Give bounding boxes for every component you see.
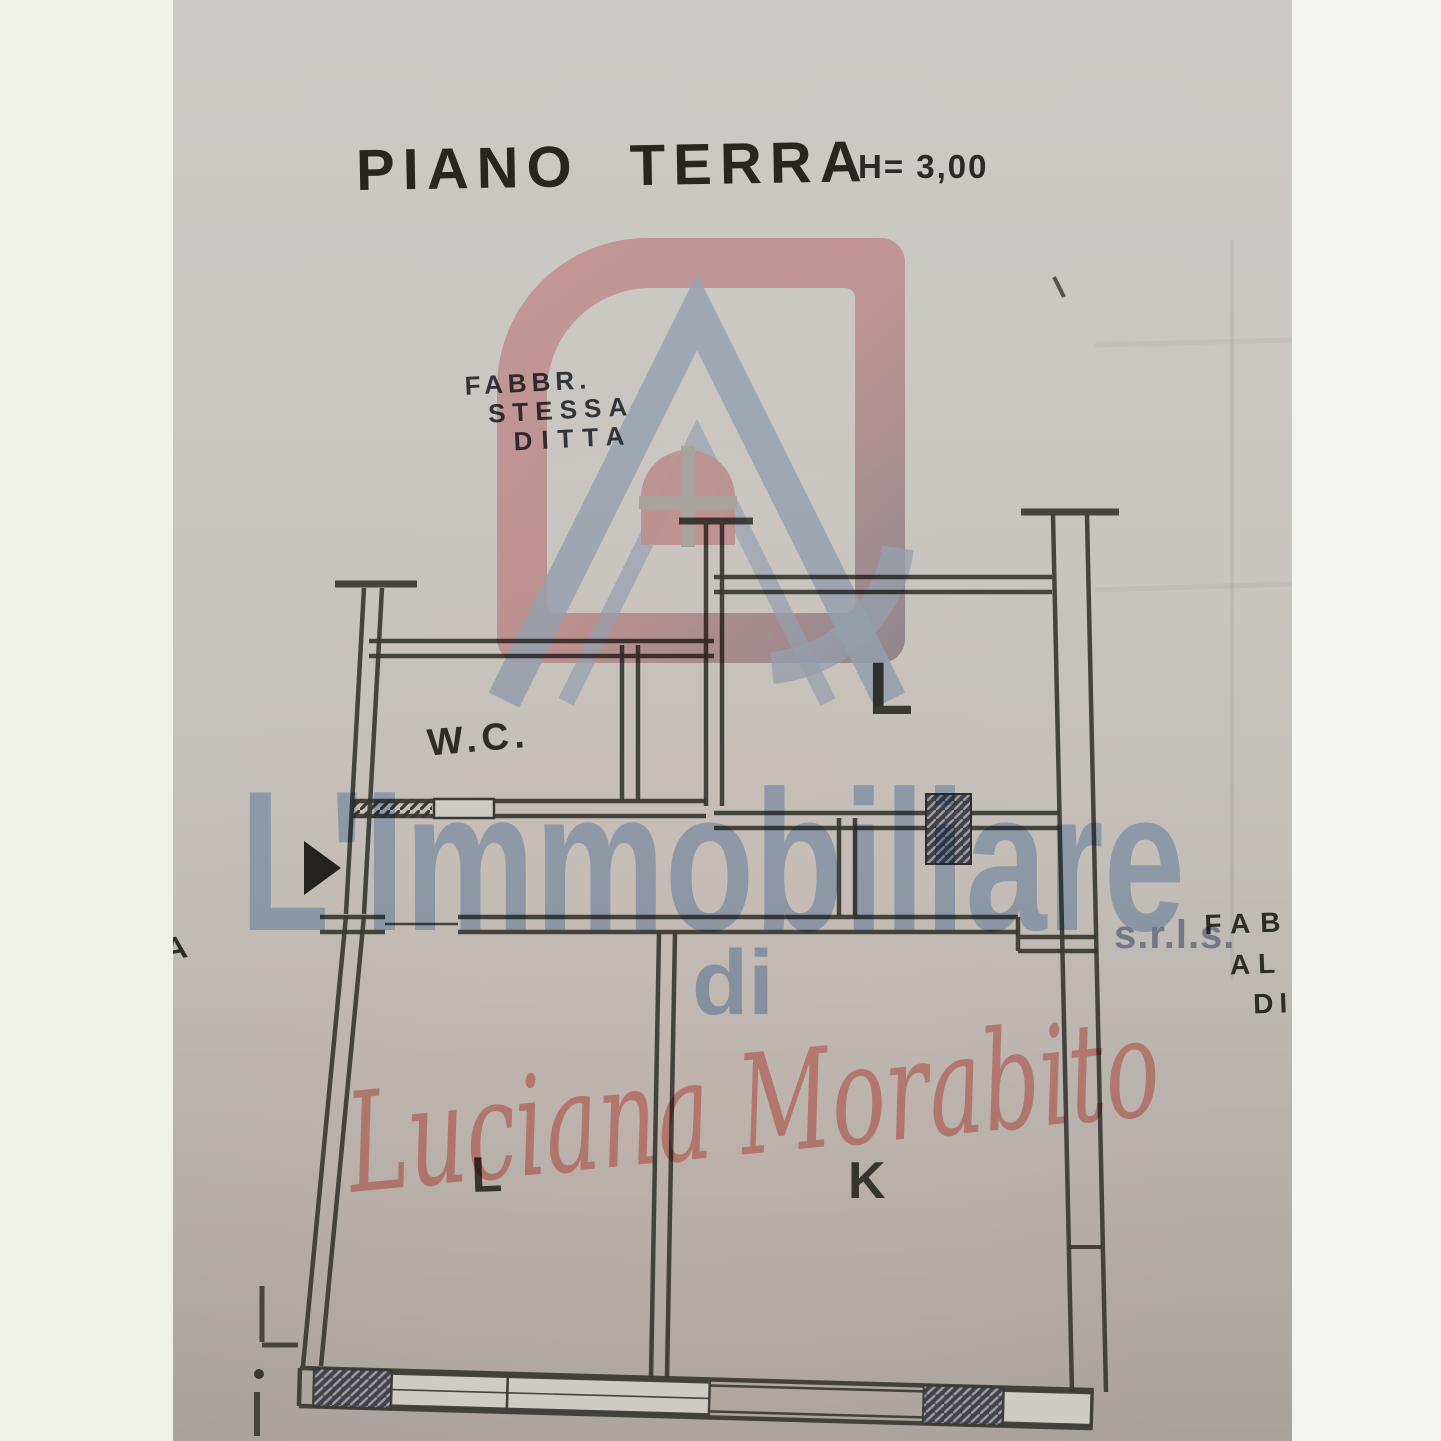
watermark-connector: di	[692, 932, 774, 1034]
plan-title: PIANO TERRA	[355, 129, 870, 203]
watermark-legal-suffix: s.r.l.s.	[1114, 913, 1235, 957]
note-adjacent-line2: AL	[1229, 948, 1283, 981]
plan-height-note: H= 3,00	[858, 148, 989, 185]
floor-plan-photo: PIANO TERRA H= 3,00 FABBR. STESSA DITTA …	[0, 0, 1441, 1441]
floor-plan-canvas: PIANO TERRA H= 3,00 FABBR. STESSA DITTA …	[0, 0, 1441, 1441]
paper-sheet	[173, 0, 1292, 1441]
note-adjacent-line3: DI	[1253, 987, 1294, 1019]
